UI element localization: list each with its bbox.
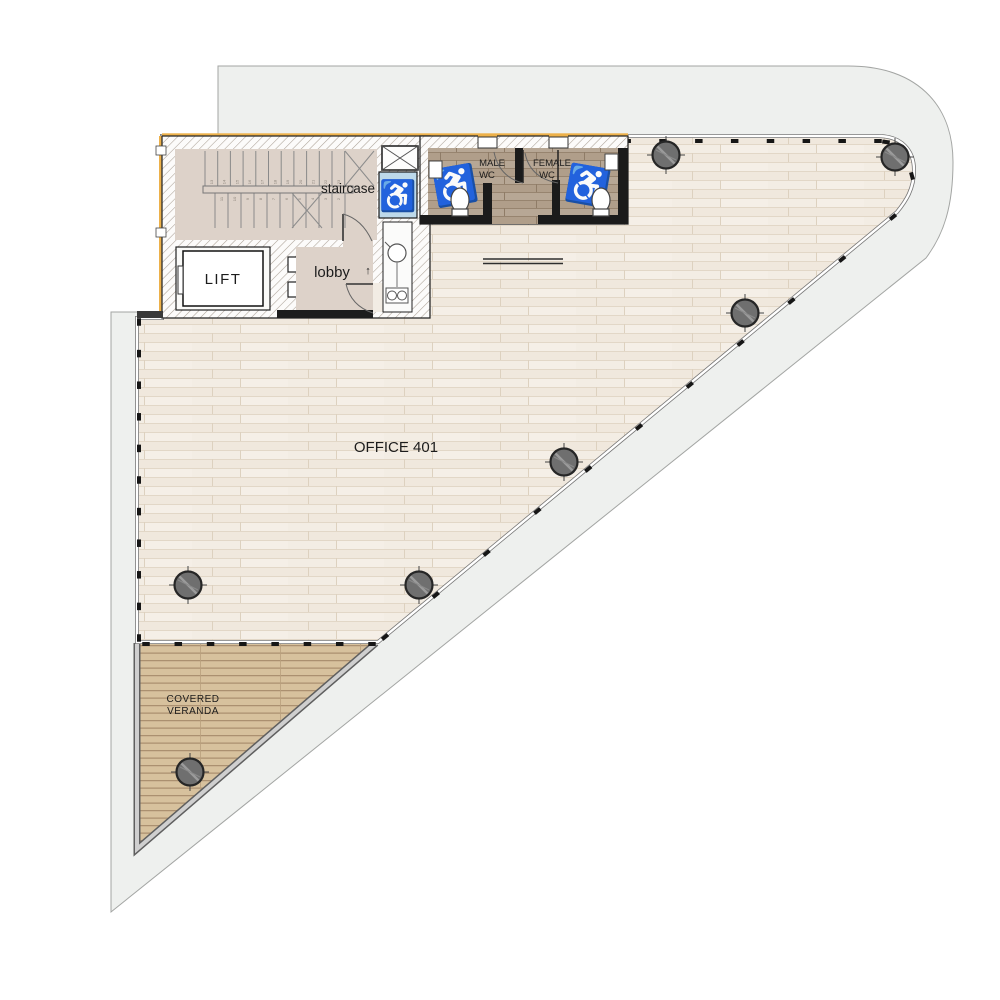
- lift-counterweight: [178, 266, 183, 294]
- mullion-tick: [803, 139, 811, 143]
- toilet-icon: [592, 188, 610, 212]
- svg-text:FEMALE: FEMALE: [533, 158, 571, 169]
- mullion-tick: [137, 381, 141, 389]
- disabled-refuge: ♿: [379, 172, 417, 218]
- svg-text:MALE: MALE: [479, 158, 505, 169]
- stair-step-number: 13: [209, 179, 214, 184]
- mullion-tick: [137, 571, 141, 579]
- basin-icon: [605, 154, 618, 170]
- mullion-tick: [137, 413, 141, 421]
- stair-step-number: 14: [222, 179, 227, 184]
- mullion-tick: [137, 318, 141, 326]
- mullion-tick: [137, 508, 141, 515]
- sink-icon: [388, 244, 406, 262]
- mullion-tick: [838, 139, 846, 143]
- veranda-label: COVERED VERANDA: [167, 694, 220, 717]
- covered-veranda: [137, 643, 376, 849]
- lift-label: LIFT: [205, 271, 242, 288]
- lobby-up-arrow: ↑: [365, 265, 371, 277]
- mullion-tick: [137, 350, 141, 358]
- wc-window: [478, 137, 497, 148]
- services-shaft: [382, 146, 418, 170]
- mullion-tick: [368, 642, 376, 646]
- mullion-tick: [767, 139, 775, 143]
- stair-step-number: 21: [310, 179, 315, 184]
- mullion-tick: [137, 476, 141, 484]
- stair-step-number: 19: [285, 179, 290, 184]
- mullion-tick: [304, 642, 312, 646]
- office-label: OFFICE 401: [354, 439, 438, 456]
- mullion-tick: [731, 139, 739, 143]
- mullion-tick: [207, 642, 215, 646]
- stair-step-number: 16: [247, 179, 252, 184]
- wc-block: ♿ ♿: [420, 134, 628, 225]
- mullion-tick: [271, 642, 279, 646]
- wall-cap: [137, 311, 163, 318]
- mullion-tick: [142, 642, 150, 646]
- mullion-tick: [874, 139, 882, 143]
- toilet-icon: [451, 188, 469, 212]
- cleaner-sink-unit: [386, 288, 408, 303]
- svg-text:WC: WC: [479, 170, 495, 181]
- core-window: [156, 146, 166, 155]
- svg-text:COVERED: COVERED: [167, 694, 220, 705]
- lobby-label: lobby: [314, 264, 350, 281]
- mullion-tick: [137, 539, 141, 547]
- mullion-tick: [336, 642, 344, 646]
- basin-icon: [429, 161, 442, 178]
- mullion-tick: [239, 642, 247, 646]
- stair-step-number: 17: [260, 179, 265, 184]
- wheelchair-icon: ♿: [379, 178, 416, 213]
- stair-step-number: 18: [272, 179, 277, 184]
- stair-step-number: 20: [298, 179, 303, 184]
- wc-window: [549, 137, 568, 148]
- staircase-label: staircase: [321, 181, 375, 196]
- mullion-tick: [695, 139, 703, 143]
- stair-step-number: 15: [234, 179, 239, 184]
- cleaner-room: [383, 222, 412, 312]
- stair-step-number: 10: [232, 196, 237, 201]
- mullion-tick: [137, 603, 141, 611]
- core-window: [156, 228, 166, 237]
- mullion-tick: [137, 445, 141, 453]
- svg-text:VERANDA: VERANDA: [167, 706, 219, 717]
- mullion-tick: [137, 634, 141, 642]
- floor-plan: 1314151617181920212223111098765432 ♿: [0, 0, 1000, 1000]
- svg-text:WC: WC: [539, 170, 555, 181]
- mullion-tick: [175, 642, 183, 646]
